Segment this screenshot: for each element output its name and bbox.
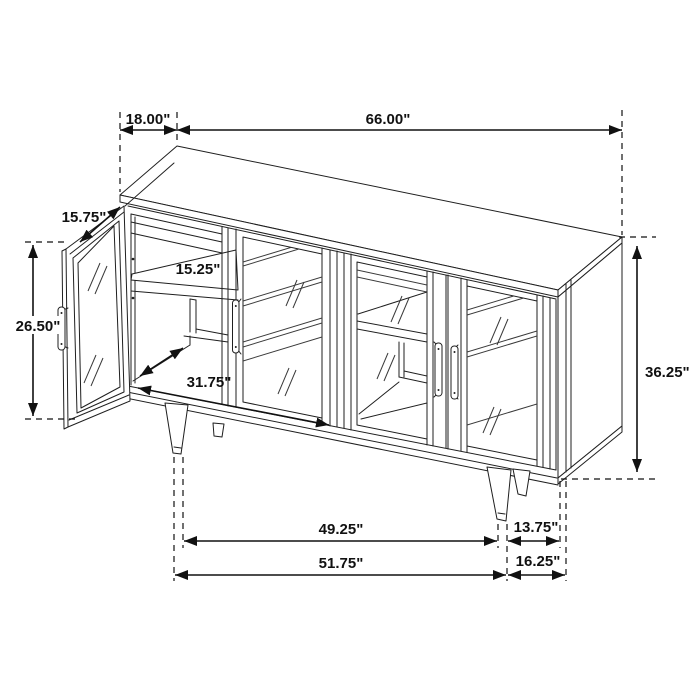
dim-label-top-depth: 18.00"	[126, 111, 171, 128]
dim-label-overall-height: 36.25"	[645, 364, 690, 381]
door-3-handle	[434, 342, 442, 397]
dim-label-top-width: 66.00"	[366, 111, 411, 128]
dim-label-right-overhang: 13.75"	[514, 519, 559, 536]
door-2-handle	[233, 299, 242, 354]
dim-right-overhang: 13.75"	[508, 519, 559, 541]
dim-label-right-overhang-outer: 16.25"	[516, 553, 561, 570]
back-left-leg	[213, 423, 224, 437]
dim-right-overhang-outer: 16.25"	[508, 553, 565, 575]
dim-leg-span-outer: 51.75"	[175, 555, 506, 575]
dim-label-door-height: 26.50"	[16, 318, 61, 335]
open-door	[58, 206, 130, 429]
door-4-handle	[451, 345, 458, 399]
door-4-glass	[467, 286, 537, 460]
dim-label-leg-span-inner: 49.25"	[319, 521, 364, 538]
dim-label-interior-width: 31.75"	[187, 374, 232, 391]
interior-back-panel	[184, 299, 228, 342]
dim-label-door-width: 15.75"	[62, 209, 107, 226]
dim-leg-span-inner: 49.25"	[184, 521, 497, 541]
cabinet-drawing	[58, 146, 622, 521]
door-2-glass	[243, 237, 322, 418]
cabinet-dimension-diagram: 18.00" 66.00" 15.75" 26.50" 15.25"	[0, 0, 700, 700]
dim-label-leg-span-outer: 51.75"	[319, 555, 364, 572]
back-right-leg	[513, 469, 530, 496]
door-3-glass	[357, 262, 427, 439]
diagram-canvas: 18.00" 66.00" 15.75" 26.50" 15.25"	[0, 0, 700, 700]
front-left-leg	[165, 403, 188, 454]
dim-label-interior-depth: 15.25"	[176, 261, 221, 278]
